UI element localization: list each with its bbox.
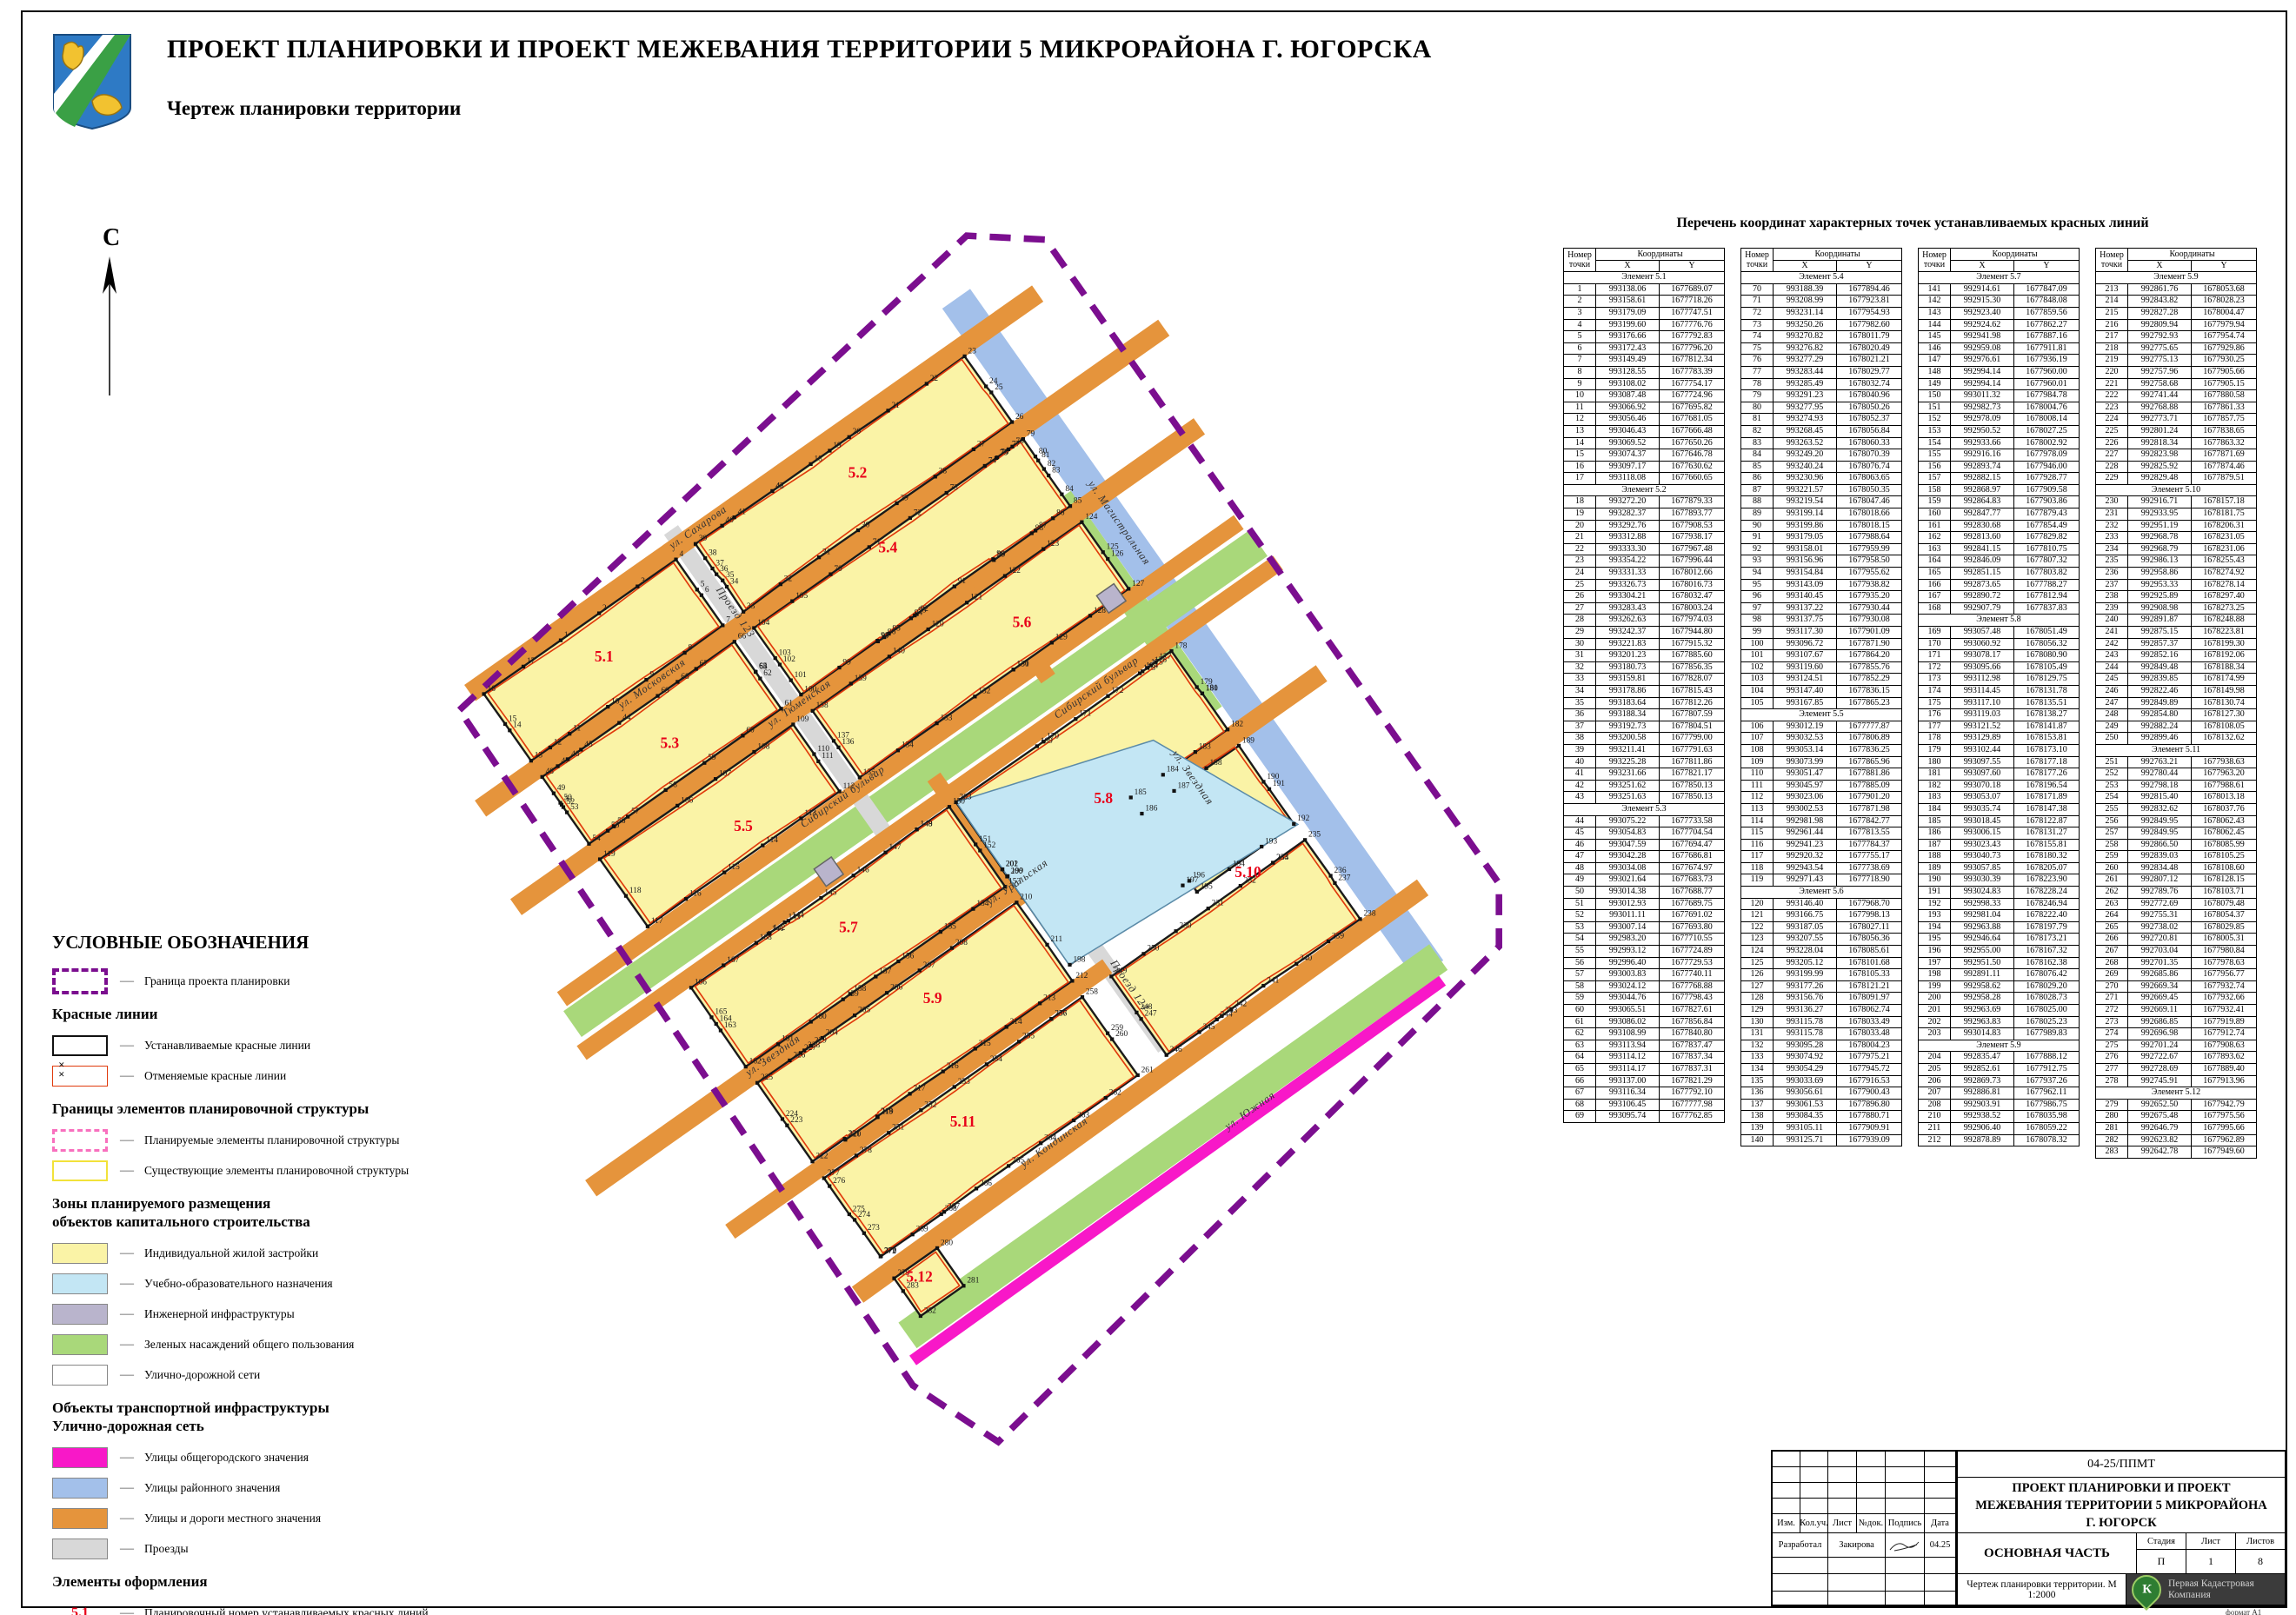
coords-row: 157992882.151677928.77 xyxy=(1919,473,2080,485)
point-marker xyxy=(940,1213,943,1216)
point-number: 15 xyxy=(509,714,517,723)
point-marker xyxy=(1261,984,1265,987)
point-number: 68 xyxy=(681,673,689,681)
point-marker xyxy=(887,1131,890,1134)
point-marker xyxy=(1141,952,1145,955)
legend-label: Планируемые элементы планировочной струк… xyxy=(144,1133,399,1147)
coords-table-column: НомерточкиКоординатыXYЭлемент 5.92139928… xyxy=(2095,248,2257,1159)
point-marker xyxy=(700,594,703,597)
point-number: 105 xyxy=(795,592,808,601)
coords-row: 218992775.651677929.86 xyxy=(2096,342,2257,355)
coords-row: 143992923.401677859.56 xyxy=(1919,307,2080,319)
page-subtitle: Чертеж планировки территории xyxy=(167,97,461,120)
coords-row: 80993277.951678050.26 xyxy=(1741,402,1902,414)
coords-row: 272992669.111677932.41 xyxy=(2096,1005,2257,1017)
point-number: 94 xyxy=(915,609,923,618)
sig-col-header: Дата xyxy=(1925,1514,1956,1533)
coords-row: 26993304.211678032.47 xyxy=(1564,591,1725,603)
point-number: 187 xyxy=(1177,781,1189,790)
point-marker xyxy=(1035,744,1039,748)
point-marker xyxy=(695,667,698,670)
coords-row: 21993312.881677938.17 xyxy=(1564,532,1725,544)
point-marker xyxy=(1201,692,1204,695)
legend-item: —Улицы общегородского значения xyxy=(52,1442,574,1472)
point-marker xyxy=(885,991,888,994)
drawing-sheet: ПРОЕКТ ПЛАНИРОВКИ И ПРОЕКТ МЕЖЕВАНИЯ ТЕР… xyxy=(0,0,2296,1615)
coords-table-column: НомерточкиКоординатыXYЭлемент 5.71419929… xyxy=(1918,248,2080,1146)
sheets-value: 8 xyxy=(2236,1550,2285,1573)
point-number: 177 xyxy=(1159,653,1171,661)
sig-col-header: Лист xyxy=(1828,1514,1857,1533)
coords-row: 246992822.461678149.98 xyxy=(2096,685,2257,697)
coords-row: 266992720.811678005.31 xyxy=(2096,934,2257,946)
coords-row: 155992916.161677978.09 xyxy=(1919,449,2080,462)
coords-row: 62993108.991677840.80 xyxy=(1564,1028,1725,1040)
point-number: 159 xyxy=(847,990,859,999)
coords-row: 190993030.391678223.90 xyxy=(1919,874,2080,887)
coords-row: 24993331.331678012.66 xyxy=(1564,568,1725,580)
point-marker xyxy=(1129,795,1133,799)
point-number: 222 xyxy=(815,1153,828,1161)
coords-row: 176993119.031678138.27 xyxy=(1919,709,2080,721)
point-number: 261 xyxy=(1141,1066,1154,1074)
coords-row: 48993034.081677674.97 xyxy=(1564,862,1725,874)
coords-row: 136993056.611677900.43 xyxy=(1741,1087,1902,1100)
coords-row: 265992738.021678029.85 xyxy=(2096,921,2257,934)
point-marker xyxy=(790,600,794,603)
point-marker xyxy=(788,1059,791,1062)
coords-row: 142992915.301677848.08 xyxy=(1919,296,2080,308)
point-marker xyxy=(529,759,533,762)
legend-item: —Улично-дорожной сети xyxy=(52,1359,574,1390)
point-marker xyxy=(1271,861,1274,864)
coords-row: 124993228.041678085.61 xyxy=(1741,946,1902,958)
point-number: 17 xyxy=(527,657,536,666)
legend-item: —Отменяемые красные линии xyxy=(52,1060,574,1091)
point-marker xyxy=(675,804,679,807)
coords-row: 237992953.331678278.14 xyxy=(2096,579,2257,591)
point-number: 7 xyxy=(726,616,730,625)
coords-row: 132993095.281678004.23 xyxy=(1741,1040,1902,1052)
point-number: 41 xyxy=(738,508,747,517)
point-marker xyxy=(855,1153,858,1157)
point-marker xyxy=(1101,550,1105,554)
point-number: 188 xyxy=(1210,759,1222,768)
point-number: 280 xyxy=(941,1239,953,1247)
coords-row: 156992893.741677946.00 xyxy=(1919,461,2080,473)
point-marker xyxy=(972,448,975,451)
coords-row: 73993250.261677982.60 xyxy=(1741,319,1902,331)
point-marker xyxy=(1327,940,1330,943)
coords-row: 261992807.121678128.15 xyxy=(2096,874,2257,887)
coords-row: 245992839.851678174.99 xyxy=(2096,674,2257,686)
point-number: 245 xyxy=(1202,1023,1215,1032)
point-number: 204 xyxy=(826,1028,838,1037)
coords-row: 166992873.651677788.27 xyxy=(1919,579,2080,591)
point-number: 255 xyxy=(1022,1033,1035,1041)
point-marker xyxy=(587,842,590,846)
point-number: 69 xyxy=(661,687,669,695)
legend-label: Отменяемые красные линии xyxy=(144,1069,286,1083)
point-marker xyxy=(1109,974,1113,978)
point-number: 181 xyxy=(1206,684,1218,693)
sheet-value: 1 xyxy=(2186,1550,2236,1573)
point-number: 134 xyxy=(902,741,914,750)
point-number: 282 xyxy=(924,1306,936,1315)
point-number: 43 xyxy=(775,482,784,490)
point-marker xyxy=(1207,907,1210,910)
coords-row: 15993074.371677646.78 xyxy=(1564,449,1725,462)
coords-row: 251992763.211677938.63 xyxy=(2096,756,2257,768)
point-marker xyxy=(1010,445,1014,449)
point-marker xyxy=(1007,448,1010,451)
coords-row: 211992906.401678059.22 xyxy=(1919,1122,2080,1134)
point-marker xyxy=(721,623,724,627)
point-marker xyxy=(1172,789,1175,793)
point-number: 47 xyxy=(562,757,570,766)
point-number: 166 xyxy=(695,979,707,987)
point-marker xyxy=(606,705,609,708)
point-marker xyxy=(1001,867,1004,871)
coords-row: 52993011.111677691.02 xyxy=(1564,910,1725,922)
point-marker xyxy=(945,491,948,495)
point-number: 214 xyxy=(1010,1018,1022,1027)
point-number: 221 xyxy=(849,1130,861,1139)
coords-row: 55992993.121677724.89 xyxy=(1564,946,1725,958)
coords-row: 97993137.221677930.44 xyxy=(1741,602,1902,615)
legend-dash: — xyxy=(120,1541,134,1557)
legend-dash: — xyxy=(120,1337,134,1352)
legend-item: —Граница проекта планировки xyxy=(52,966,574,996)
legend-swatch-num-red: 5.1 xyxy=(52,1605,108,1615)
coords-row: 94993154.841677955.62 xyxy=(1741,568,1902,580)
point-marker xyxy=(837,666,841,669)
point-number: 281 xyxy=(967,1277,979,1286)
point-marker xyxy=(809,1044,813,1047)
point-marker xyxy=(482,692,486,695)
coords-row: 3993179.091677747.51 xyxy=(1564,307,1725,319)
coords-row: 186993006.151678131.27 xyxy=(1919,827,2080,840)
point-marker xyxy=(1042,467,1046,470)
coords-row: 75993276.821678020.49 xyxy=(1741,342,1902,355)
coords-row: 241992875.151678223.81 xyxy=(2096,627,2257,639)
point-marker xyxy=(1228,867,1231,871)
coords-row: 254992815.401678013.18 xyxy=(2096,792,2257,804)
point-number: 203 xyxy=(960,793,972,801)
coords-row: 6993172.431677796.20 xyxy=(1564,342,1725,355)
coords-row: 116992941.231677784.37 xyxy=(1741,839,1902,851)
point-marker xyxy=(754,670,757,674)
coords-row: 19993282.371677893.77 xyxy=(1564,508,1725,521)
coords-row: 260992834.481678108.60 xyxy=(2096,862,2257,874)
point-number: 67 xyxy=(700,660,709,668)
point-marker xyxy=(1060,493,1063,496)
point-marker xyxy=(1268,788,1271,791)
point-number: 273 xyxy=(868,1224,880,1233)
point-marker xyxy=(1051,516,1055,520)
point-marker xyxy=(919,1314,922,1318)
point-marker xyxy=(856,528,860,532)
coords-row: 105993167.851677865.23 xyxy=(1741,697,1902,709)
point-number: 152 xyxy=(983,841,995,850)
coords-row: 101993107.671677864.20 xyxy=(1741,650,1902,662)
point-marker xyxy=(656,695,659,698)
point-marker xyxy=(598,857,602,861)
company-pin-icon: К xyxy=(2126,1568,2167,1610)
coords-row: 236992958.861678274.92 xyxy=(2096,568,2257,580)
point-marker xyxy=(1328,874,1332,877)
legend-swatch-fill-school xyxy=(52,1273,108,1294)
point-marker xyxy=(1030,531,1034,535)
coords-row: 98993137.751677930.08 xyxy=(1741,615,1902,627)
point-marker xyxy=(1197,1030,1201,1033)
coords-row: 84993249.201678070.39 xyxy=(1741,449,1902,462)
coords-row: 214992843.821678028.23 xyxy=(2096,296,2257,308)
territory-plan-map: 1234567891011121314151617181920212223242… xyxy=(417,217,1521,1460)
coords-row: 270992669.341677932.74 xyxy=(2096,980,2257,993)
coords-row: 45993054.831677704.54 xyxy=(1564,827,1725,840)
point-number: 120 xyxy=(932,620,944,628)
point-marker xyxy=(541,775,544,779)
point-marker xyxy=(1174,929,1177,933)
sig-role: Разработал xyxy=(1773,1533,1828,1558)
legend-dash: — xyxy=(120,1480,134,1496)
coords-table-column: НомерточкиКоординатыXYЭлемент 5.47099318… xyxy=(1740,248,1902,1146)
point-marker xyxy=(1165,1053,1168,1057)
point-number: 18 xyxy=(815,455,823,463)
coords-row: 20993292.761677908.53 xyxy=(1564,520,1725,532)
point-number: 241 xyxy=(1267,976,1279,985)
point-marker xyxy=(799,1051,802,1054)
coords-row: 217992792.931677954.74 xyxy=(2096,331,2257,343)
point-number: 142 xyxy=(773,924,785,933)
point-number: 84 xyxy=(1065,485,1074,494)
coords-row: 242992857.371678199.30 xyxy=(2096,638,2257,650)
point-number: 106 xyxy=(681,796,693,805)
coords-row: 172993095.661678105.49 xyxy=(1919,661,2080,674)
point-marker xyxy=(902,1289,905,1293)
legend-item: —Улицы и дороги местного значения xyxy=(52,1503,574,1533)
point-marker xyxy=(908,516,912,520)
coords-row: 34993178.861677815.43 xyxy=(1564,685,1725,697)
element-number-label: 5.1 xyxy=(595,648,614,665)
legend-label: Граница проекта планировки xyxy=(144,974,290,988)
coords-row: 203993014.831677989.83 xyxy=(1919,1028,2080,1040)
point-number: 149 xyxy=(920,821,932,829)
legend-swatch-pink-dash xyxy=(52,1129,108,1152)
coords-row: 28993262.631677974.03 xyxy=(1564,615,1725,627)
point-number: 124 xyxy=(1085,513,1097,522)
point-marker xyxy=(1237,744,1241,748)
point-number: 30 xyxy=(862,521,870,529)
point-number: 193 xyxy=(1265,837,1277,846)
point-marker xyxy=(770,489,774,493)
point-marker xyxy=(1074,717,1077,721)
coords-row: 29993242.371677944.80 xyxy=(1564,627,1725,639)
point-marker xyxy=(962,1284,965,1287)
point-number: 139 xyxy=(855,675,867,683)
title-block: Изм.Кол.уч.Лист№док.ПодписьДатаРазработа… xyxy=(1771,1450,2286,1606)
element-number-label: 5.12 xyxy=(906,1268,932,1285)
point-marker xyxy=(719,1028,722,1032)
point-marker xyxy=(953,585,956,588)
point-marker xyxy=(755,1081,759,1085)
point-marker xyxy=(819,896,822,900)
point-marker xyxy=(1010,420,1014,423)
point-marker xyxy=(617,721,621,725)
coords-row: 168992907.791677837.83 xyxy=(1919,602,2080,615)
point-marker xyxy=(674,558,677,562)
north-label: С xyxy=(103,224,143,252)
coords-row: 130993115.781678033.49 xyxy=(1741,1016,1902,1028)
coords-row: 137993061.531677896.80 xyxy=(1741,1099,1902,1111)
element-number-label: 5.5 xyxy=(734,818,753,834)
point-number: 115 xyxy=(728,863,740,872)
point-number: 3 xyxy=(641,577,645,586)
legend-item: —Индивидуальной жилой застройки xyxy=(52,1238,574,1268)
point-marker xyxy=(1140,812,1143,815)
coords-row: 182993070.181678196.54 xyxy=(1919,780,2080,792)
point-number: 128 xyxy=(1094,607,1106,615)
coords-row: 43993251.631677850.13 xyxy=(1564,792,1725,804)
point-number: 122 xyxy=(1008,567,1021,575)
document-code: 04-25/ППМТ xyxy=(1958,1452,2285,1478)
coords-row: 253992798.181677988.61 xyxy=(2096,780,2257,792)
point-marker xyxy=(895,502,898,505)
coords-row: 204992835.471677888.12 xyxy=(1919,1052,2080,1064)
coords-row: 64993114.121677837.34 xyxy=(1564,1052,1725,1064)
coords-row: 74993270.821678011.79 xyxy=(1741,331,1902,343)
point-marker xyxy=(965,601,968,604)
point-number: 197 xyxy=(1186,876,1198,885)
legend-swatch-border-project xyxy=(52,968,108,994)
point-marker xyxy=(888,655,891,658)
point-marker xyxy=(1141,669,1144,673)
coords-row: 99993117.301677901.09 xyxy=(1741,627,1902,639)
coords-row: 77993283.441678029.77 xyxy=(1741,366,1902,378)
point-number: 217 xyxy=(914,1085,926,1093)
point-marker xyxy=(1017,1040,1021,1043)
coords-row: 47993042.281677686.81 xyxy=(1564,851,1725,863)
coords-row: 88993219.541678047.46 xyxy=(1741,496,1902,508)
point-number: 146 xyxy=(857,867,869,875)
coords-row: 120993146.401677968.70 xyxy=(1741,898,1902,910)
point-number: 276 xyxy=(833,1177,845,1186)
legend-label: Существующие элементы планировочной стру… xyxy=(144,1164,409,1178)
point-marker xyxy=(963,355,967,358)
coords-row: 13993046.431677666.48 xyxy=(1564,425,1725,437)
point-number: 269 xyxy=(916,1226,928,1234)
point-number: 38 xyxy=(709,549,717,558)
point-marker xyxy=(896,960,900,963)
coords-row: 161992830.681677854.49 xyxy=(1919,520,2080,532)
point-marker xyxy=(1049,1017,1053,1020)
coords-row: 54992983.201677710.55 xyxy=(1564,934,1725,946)
point-marker xyxy=(1204,767,1208,770)
point-marker xyxy=(1007,1164,1010,1167)
point-marker xyxy=(720,524,723,528)
legend-dash: — xyxy=(120,1133,134,1148)
coords-row: 258992866.501678085.99 xyxy=(2096,839,2257,851)
point-marker xyxy=(875,639,879,642)
sig-date: 04.25 xyxy=(1925,1533,1956,1558)
coords-row: 14993069.521677650.26 xyxy=(1564,437,1725,449)
point-number: 202 xyxy=(1006,860,1018,868)
legend-dash: — xyxy=(120,974,134,989)
point-number: 137 xyxy=(837,732,849,741)
point-number: 160 xyxy=(815,1013,827,1021)
coords-row: 57993003.831677740.11 xyxy=(1564,969,1725,981)
point-number: 132 xyxy=(978,688,990,696)
point-number: 262 xyxy=(1109,1089,1121,1098)
project-name: ПРОЕКТ ПЛАНИРОВКИ И ПРОЕКТ МЕЖЕВАНИЯ ТЕР… xyxy=(1958,1478,2285,1533)
point-number: 118 xyxy=(629,887,642,895)
point-number: 88 xyxy=(1035,524,1044,533)
point-number: 252 xyxy=(924,1101,936,1110)
coords-row: 9993108.021677754.17 xyxy=(1564,378,1725,390)
point-number: 191 xyxy=(1273,780,1285,788)
coords-row: 180993097.551678177.18 xyxy=(1919,756,2080,768)
point-marker xyxy=(985,1062,988,1066)
point-number: 207 xyxy=(923,961,935,970)
point-marker xyxy=(1239,884,1242,887)
format-note: формат А1 xyxy=(2226,1608,2261,1615)
signature-table: Изм.Кол.уч.Лист№док.ПодписьДатаРазработа… xyxy=(1773,1452,1958,1605)
coords-row: 201992963.691678025.00 xyxy=(1919,1005,2080,1017)
sig-col-header: Кол.уч. xyxy=(1800,1514,1828,1533)
coords-row: 83993263.521678060.33 xyxy=(1741,437,1902,449)
coords-row: 212992878.891678078.32 xyxy=(1919,1134,2080,1146)
point-number: 178 xyxy=(1175,641,1187,650)
point-marker xyxy=(779,582,782,586)
coords-row: 240992891.871678248.88 xyxy=(2096,615,2257,627)
coords-row: 69993095.741677762.85 xyxy=(1564,1111,1725,1123)
point-number: 2 xyxy=(602,604,607,613)
point-marker xyxy=(1303,838,1307,841)
point-marker xyxy=(787,919,790,922)
point-marker xyxy=(975,1186,978,1190)
point-number: 253 xyxy=(958,1078,970,1087)
coords-row: 11993066.921677695.82 xyxy=(1564,402,1725,414)
point-number: 23 xyxy=(968,347,977,356)
point-marker xyxy=(822,1176,826,1180)
legend-section-heading: Элементы оформления xyxy=(52,1572,574,1591)
legend-label: Инженерной инфраструктуры xyxy=(144,1307,295,1321)
point-number: 208 xyxy=(955,939,968,947)
coords-row: 230992916.711678157.18 xyxy=(2096,496,2257,508)
coords-row: 178993129.891678153.81 xyxy=(1919,733,2080,745)
point-marker xyxy=(1036,459,1040,462)
signature xyxy=(1886,1533,1925,1558)
legend-label: Улицы и дороги местного значения xyxy=(144,1512,321,1525)
legend-label: Учебно-образовательного назначения xyxy=(144,1277,333,1291)
point-number: 211 xyxy=(1050,935,1062,944)
point-number: 53 xyxy=(570,803,579,812)
point-number: 251 xyxy=(892,1124,904,1133)
point-marker xyxy=(843,1137,847,1140)
coords-row: 170993060.921678056.32 xyxy=(1919,638,2080,650)
legend: УСЛОВНЫЕ ОБОЗНАЧЕНИЯ —Граница проекта пл… xyxy=(52,932,574,1615)
point-marker xyxy=(733,640,736,643)
point-marker xyxy=(1292,822,1295,826)
point-marker xyxy=(802,1048,806,1052)
coords-row: 208992903.911677986.75 xyxy=(1919,1099,2080,1111)
point-marker xyxy=(832,739,835,742)
coords-row: 184993035.741678147.38 xyxy=(1919,803,2080,815)
point-marker xyxy=(549,746,552,749)
coords-row: 128993156.761678091.97 xyxy=(1741,993,1902,1005)
point-number: 1 xyxy=(564,631,569,640)
